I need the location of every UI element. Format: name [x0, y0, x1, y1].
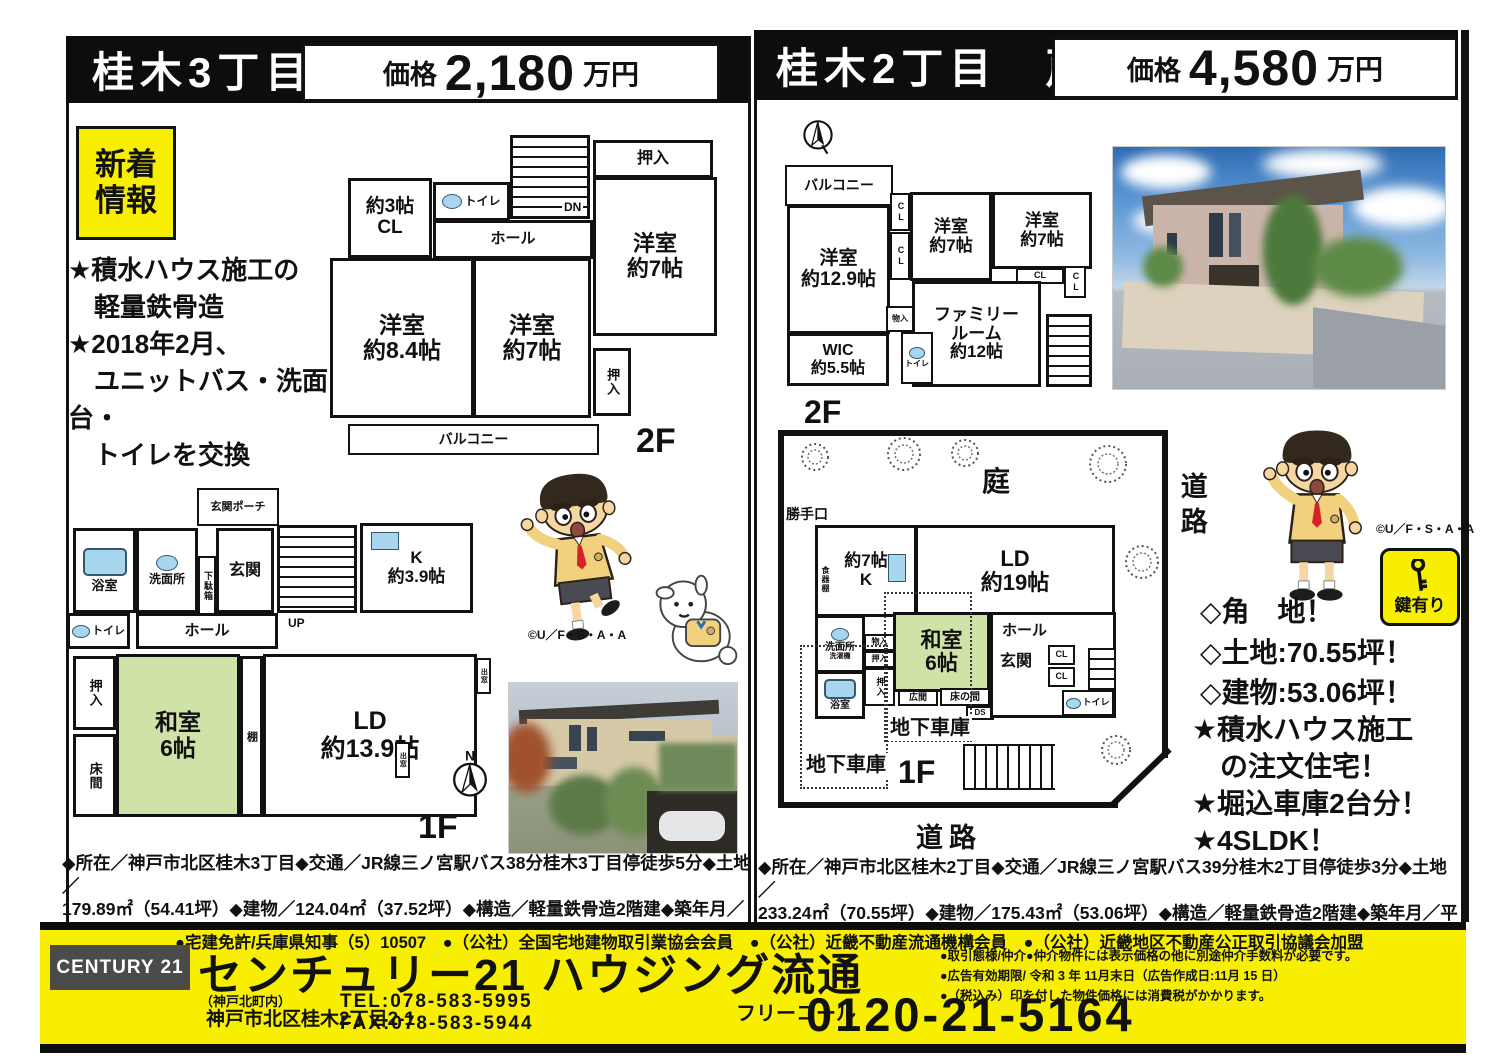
- flyer-page: 桂木3丁目 戸建 価格 2,180 万円 桂木2丁目 戸建 価格 4,580 万…: [0, 0, 1500, 1061]
- room-kitchen-label: 約7帖 K: [844, 552, 887, 589]
- room-oshiire-1f-left: 押入: [73, 656, 116, 730]
- room-western-7-right: 洋室 約7帖: [593, 177, 717, 336]
- photo-greenery: [1313, 237, 1403, 297]
- sink-icon: [831, 628, 849, 641]
- footer-top-rule: [40, 922, 1466, 930]
- room-bath-label: 浴室: [91, 579, 117, 593]
- left-property-photo: [508, 682, 738, 854]
- footer-freecall-number: 0120-21-5164: [806, 986, 1135, 1045]
- right-property-photo: [1112, 146, 1446, 390]
- photo-cloud: [1121, 155, 1211, 189]
- room-closet-3jo: 約3帖 CL: [348, 178, 432, 258]
- hall-label-right: ホール: [1002, 622, 1047, 641]
- new-listing-badge: 新着 情報: [76, 126, 176, 240]
- staircase-1f-right: [1088, 648, 1116, 690]
- room-entrance-porch: 玄関ポーチ: [197, 488, 279, 526]
- photo-window: [1229, 213, 1241, 257]
- photo-greenery: [1143, 247, 1183, 287]
- room-shoe-cabinet: 下駄箱: [198, 556, 216, 616]
- toilet-icon: [1066, 698, 1081, 709]
- tree-icon: [884, 434, 924, 474]
- room-cl-entry-1: CL: [1048, 645, 1075, 665]
- toilet-icon: [72, 625, 90, 638]
- room-western-129: 洋室 約12.9帖: [787, 205, 890, 334]
- room-western-7-mid: 洋室 約7帖: [473, 258, 591, 418]
- photo-road: [1313, 307, 1446, 390]
- left-price-value: 2,180: [445, 44, 575, 102]
- room-toilet-2f-right: トイレ: [901, 332, 933, 384]
- floor-label-1f-right: 1F: [898, 752, 935, 792]
- site-boundary-right: [1162, 430, 1168, 758]
- key-icon: [1402, 559, 1438, 591]
- left-price-label: 価格: [383, 53, 437, 92]
- room-toilet-1f-right: トイレ: [1062, 690, 1114, 716]
- sink-icon: [156, 555, 178, 571]
- left-price-unit: 万円: [583, 53, 639, 93]
- road-label-right: 道路: [1174, 472, 1208, 542]
- room-toilet-label: トイレ: [1082, 698, 1109, 708]
- room-cl-entry-2: CL: [1048, 667, 1075, 687]
- room-hall-1f-left: ホール: [136, 613, 278, 649]
- room-oshiire-bottom: 押入: [593, 348, 631, 416]
- bathtub-icon: [83, 548, 127, 576]
- underground-garage-label-1: 地下車庫: [888, 716, 972, 741]
- footer-bottom-rule: [40, 1044, 1466, 1053]
- room-balcony-left: バルコニー: [348, 424, 599, 455]
- footer-fax: FAX:078-583-5944: [340, 1012, 534, 1036]
- photo-window: [569, 725, 581, 751]
- tree-icon: [798, 440, 832, 474]
- room-kitchen-label: K 約3.9帖: [388, 549, 446, 586]
- floor-label-1f-left: 1F: [418, 806, 458, 849]
- left-copyright: ©U／F・S・A・A: [528, 628, 626, 643]
- selling-points-diamond: ◇角 地！ ◇土地:70.55坪！ ◇建物:53.06坪！: [1200, 592, 1413, 714]
- footer-tel: TEL:078-583-5995: [340, 990, 533, 1014]
- right-price-unit: 万円: [1327, 48, 1383, 88]
- kitchen-sink-icon: [888, 554, 906, 582]
- shinchan-character: [1258, 418, 1376, 614]
- stairs-down-label: DN: [562, 200, 583, 215]
- room-cl-1: CL: [890, 193, 910, 231]
- genkan-label-right: 玄関: [1000, 652, 1032, 672]
- svg-text:N: N: [465, 748, 475, 763]
- room-shelf: 棚: [240, 656, 263, 817]
- tree-icon: [1086, 442, 1130, 486]
- room-toilet-2f-left: トイレ: [433, 182, 510, 221]
- right-price-label: 価格: [1127, 49, 1181, 88]
- room-cl-2: CL: [890, 232, 910, 280]
- photo-cloud: [1353, 187, 1446, 227]
- staircase-2f-right: [1046, 314, 1092, 387]
- selling-points-star: ★積水ハウス施工 の注文住宅！ ★堀込車庫2台分！ ★4SLDK！: [1192, 712, 1429, 860]
- room-wic: WIC 約5.5帖: [787, 333, 889, 386]
- right-price-value: 4,580: [1189, 39, 1319, 97]
- right-price-box: 価格 4,580 万円: [1052, 37, 1458, 99]
- photo-car: [659, 811, 725, 841]
- garden-label: 庭: [982, 464, 1010, 499]
- driveway-steps: [963, 744, 1055, 790]
- staircase-1f-left: [277, 525, 357, 613]
- floor-label-2f-right: 2F: [804, 392, 841, 432]
- room-cl-4: CL: [1064, 266, 1086, 298]
- room-washroom-label: 洗面所: [149, 573, 185, 586]
- compass-icon: [800, 116, 836, 160]
- toilet-icon: [442, 194, 462, 209]
- room-toilet-1f-left: トイレ: [67, 613, 130, 649]
- site-boundary-left: [778, 430, 784, 808]
- room-western-7-a: 洋室 約7帖: [910, 192, 992, 281]
- stairs-up-label: UP: [288, 616, 305, 631]
- right-copyright: ©U／F・S・A・A: [1376, 522, 1474, 537]
- room-hall-2f-left: ホール: [433, 220, 593, 259]
- dish-cabinet-label: 食器棚: [820, 566, 830, 593]
- road-label-bottom: 道路: [916, 822, 982, 856]
- room-western-7-b: 洋室 約7帖: [992, 192, 1092, 269]
- bay-window-2: 出窓: [395, 742, 410, 778]
- room-oshiire-top: 押入: [593, 140, 713, 178]
- toilet-icon: [909, 347, 925, 359]
- room-ld-1f-left: LD 約13.9帖: [263, 654, 477, 817]
- photo-window: [587, 727, 597, 751]
- photo-window: [629, 731, 665, 741]
- back-door-label: 勝手口: [786, 506, 828, 524]
- floor-label-2f-left: 2F: [636, 420, 676, 463]
- left-price-box: 価格 2,180 万円: [302, 43, 720, 102]
- photo-tree: [1263, 195, 1323, 305]
- photo-window: [1209, 213, 1223, 257]
- century21-logo: CENTURY 21: [50, 945, 190, 990]
- tree-icon: [948, 436, 982, 470]
- room-balcony-right: バルコニー: [785, 165, 893, 206]
- photo-ivy: [659, 743, 737, 791]
- room-toilet-label: トイレ: [92, 625, 125, 637]
- room-toilet-label: トイレ: [464, 195, 500, 208]
- tree-icon: [1098, 732, 1134, 768]
- room-toilet-label: トイレ: [905, 360, 929, 369]
- shinchan-character: [511, 459, 651, 656]
- room-bath-1f-left: 浴室: [73, 528, 136, 613]
- tree-icon: [1122, 542, 1162, 582]
- room-storage: 物入: [886, 306, 914, 332]
- kitchen-sink-icon: [371, 532, 399, 550]
- site-boundary-bottom: [778, 802, 1118, 808]
- room-tokonoma-left: 床間: [73, 734, 116, 817]
- room-washitsu-1f-left: 和室 6帖: [116, 654, 240, 817]
- shiro-character: [648, 566, 743, 670]
- room-washroom-1f-left: 洗面所: [136, 528, 198, 613]
- left-highlights: ★積水ハウス施工の 軽量鉄骨造 ★2018年2月、 ユニットバス・洗面台・ トイ…: [68, 252, 336, 473]
- underground-garage-label-2: 地下車庫: [804, 753, 888, 778]
- room-genkan-1f-left: 玄関: [216, 528, 274, 613]
- room-western-84: 洋室 約8.4帖: [330, 258, 474, 418]
- bay-window-1: 出窓: [476, 658, 491, 694]
- room-kitchen-1f-left: K 約3.9帖: [360, 523, 473, 613]
- north-compass-icon: N: [450, 748, 490, 800]
